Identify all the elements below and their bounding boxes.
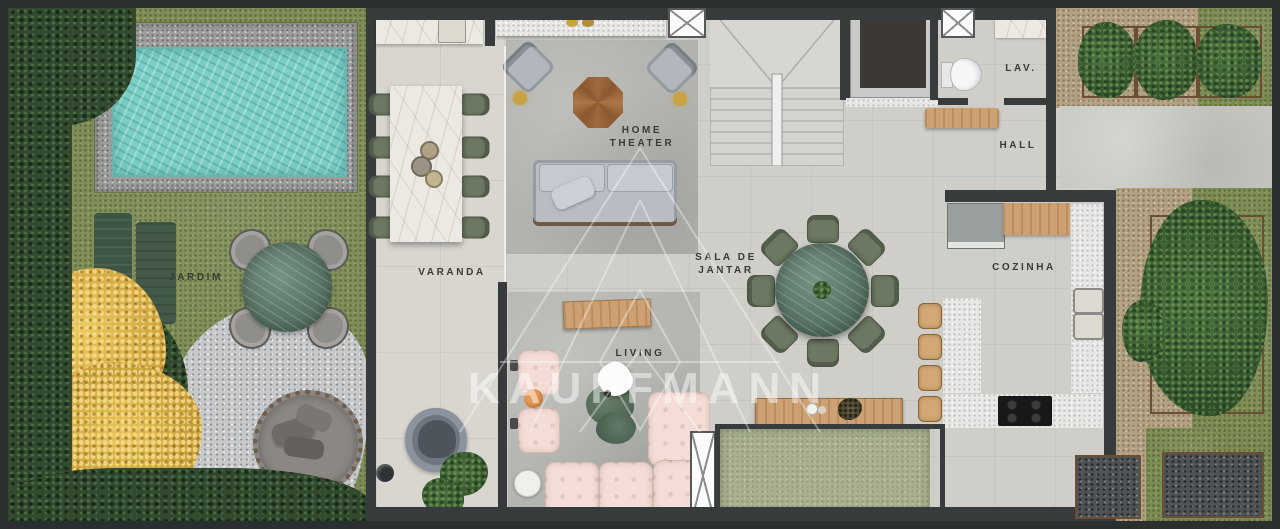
- lav-right-wall: [1046, 8, 1056, 190]
- console-stub-wall: [485, 8, 495, 46]
- side-table-black: [376, 464, 394, 482]
- dark-gravel-bed: [1162, 452, 1264, 518]
- kitchen-wood-counter: [1003, 203, 1070, 235]
- lav-hall-wall: [1004, 98, 1046, 105]
- planter-plants: [1196, 24, 1262, 98]
- elevator-core: [860, 20, 926, 88]
- kitchen-cabinet: [947, 203, 1005, 249]
- house-right-wall: [1104, 190, 1116, 462]
- room-label-cozinha: COZINHA: [982, 261, 1066, 274]
- room-label-hall: HALL: [990, 139, 1046, 152]
- kitchen-sink: [1073, 313, 1104, 340]
- octagon-coffee-table: [573, 77, 623, 128]
- planter-plants-large: [1140, 200, 1268, 416]
- kitchen-stool: [918, 303, 942, 329]
- side-table-white: [514, 470, 541, 497]
- stair-wall: [840, 8, 850, 100]
- floor-plan: JARDIM VARANDA HOME THEATER: [0, 0, 1280, 529]
- facade-window: [941, 8, 975, 38]
- varanda-chair: [461, 94, 490, 116]
- marble-threshold: [846, 98, 938, 107]
- elevator-right-wall: [930, 8, 938, 100]
- dining-chair: [871, 275, 899, 307]
- floor-lamp: [513, 91, 527, 105]
- planter-plants: [1078, 22, 1136, 98]
- room-label-lav: LAV.: [998, 62, 1044, 75]
- dark-gravel-bed: [1075, 455, 1141, 519]
- concrete-path: [1060, 106, 1272, 188]
- kitchen-sink: [1073, 288, 1104, 314]
- counter-sink: [438, 17, 466, 43]
- kitchen-stool: [918, 334, 942, 360]
- garden-table: [242, 242, 332, 332]
- lav-hall-wall: [938, 98, 968, 105]
- watermark-brand: KAUFFMANN: [468, 364, 830, 414]
- kitchen-stool: [918, 396, 942, 422]
- planter-plants: [1134, 20, 1198, 100]
- room-label-jardim: JARDIM: [148, 271, 244, 284]
- cooktop: [998, 396, 1052, 426]
- floor-lamp: [673, 92, 687, 106]
- home-theater-line1: HOME: [622, 125, 662, 136]
- hall-bench: [925, 108, 999, 128]
- facade-window: [668, 8, 706, 38]
- kitchen-top-wall: [945, 190, 1115, 202]
- garden-bush: [1122, 300, 1164, 362]
- bottom-wall: [368, 507, 1116, 521]
- courtyard-lawn: [720, 429, 930, 514]
- house-left-wall: [366, 8, 376, 521]
- kitchen-stool: [918, 365, 942, 391]
- pool-water: [112, 47, 347, 177]
- garden-hedge-bottom: [8, 468, 370, 521]
